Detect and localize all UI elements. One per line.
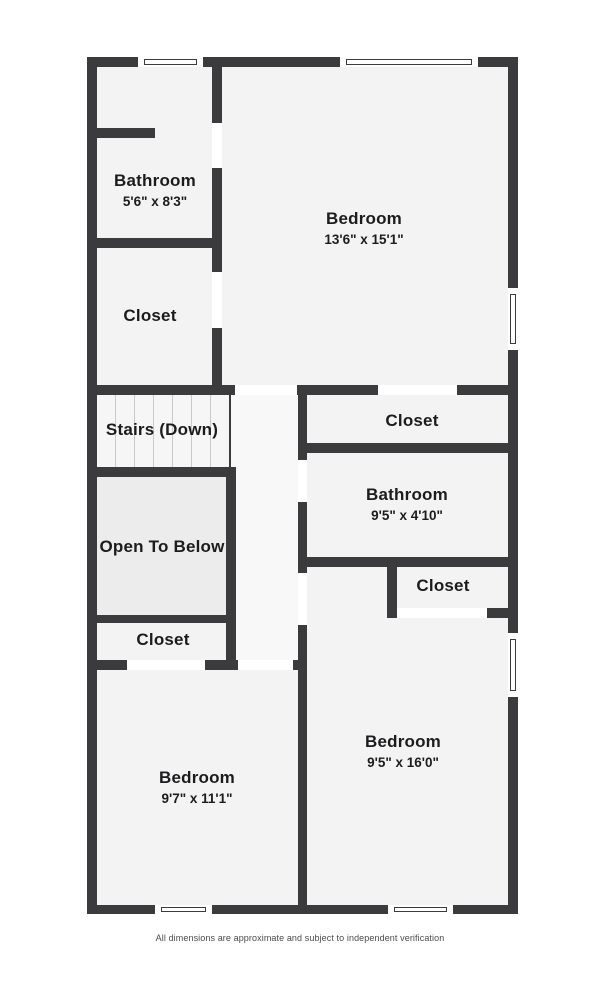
label-bathroom-mid: Bathroom 9'5" x 4'10" <box>366 485 448 523</box>
window-bedroom-upper-top <box>340 57 478 67</box>
room-name: Closet <box>385 411 438 431</box>
label-bedroom-upper: Bedroom 13'6" x 15'1" <box>324 209 403 247</box>
label-open-to-below: Open To Below <box>99 537 224 557</box>
window-bedroom-lower-right-side <box>508 633 518 697</box>
window-bathroom-upper <box>138 57 203 67</box>
window-pane <box>394 907 447 912</box>
label-closet-mid-left: Closet <box>136 630 189 650</box>
hallway-main <box>236 467 298 660</box>
door-bathroom-mid <box>298 460 307 502</box>
room-name: Bedroom <box>324 209 403 229</box>
window-pane <box>144 59 197 65</box>
window-pane <box>346 59 472 65</box>
window-bedroom-upper-right <box>508 288 518 350</box>
room-name: Open To Below <box>99 537 224 557</box>
disclaimer-text: All dimensions are approximate and subje… <box>156 933 445 943</box>
room-dims: 9'5" x 4'10" <box>366 508 448 524</box>
door-bedroom-lower-left <box>238 660 293 670</box>
window-bedroom-lower-right-bottom <box>388 905 453 914</box>
label-bedroom-lower-right: Bedroom 9'5" x 16'0" <box>365 732 441 770</box>
room-bathroom-upper <box>97 67 212 238</box>
room-dims: 9'7" x 11'1" <box>159 791 235 807</box>
label-stairs: Stairs (Down) <box>106 420 218 440</box>
label-bathroom-upper: Bathroom 5'6" x 8'3" <box>114 171 196 209</box>
hallway-upper <box>231 395 298 467</box>
wall-bathroom-stub <box>97 128 155 138</box>
label-bedroom-lower-left: Bedroom 9'7" x 11'1" <box>159 768 235 806</box>
floor-plan: Bathroom 5'6" x 8'3" Closet Bedroom 13'6… <box>0 0 600 988</box>
room-name: Bedroom <box>159 768 235 788</box>
room-dims: 13'6" x 15'1" <box>324 232 403 248</box>
room-dims: 9'5" x 16'0" <box>365 755 441 771</box>
window-pane <box>510 294 516 344</box>
door-bedroom-lower-right <box>298 573 307 625</box>
room-name: Closet <box>416 576 469 596</box>
door-bathroom-upper <box>212 123 222 168</box>
door-closet-upper-left <box>212 272 222 328</box>
label-closet-upper-left: Closet <box>123 306 176 326</box>
door-closet-lower-right <box>397 608 487 618</box>
room-name: Bathroom <box>366 485 448 505</box>
door-closet-mid-right <box>378 385 457 395</box>
label-closet-mid-right: Closet <box>385 411 438 431</box>
room-name: Bathroom <box>114 171 196 191</box>
room-dims: 5'6" x 8'3" <box>114 194 196 210</box>
label-closet-lower-right: Closet <box>416 576 469 596</box>
door-bedroom-upper <box>235 385 297 395</box>
room-name: Closet <box>123 306 176 326</box>
door-closet-mid-left <box>127 660 205 670</box>
room-name: Bedroom <box>365 732 441 752</box>
window-pane <box>161 907 206 912</box>
room-name: Stairs (Down) <box>106 420 218 440</box>
room-name: Closet <box>136 630 189 650</box>
window-bedroom-lower-left <box>155 905 212 914</box>
window-pane <box>510 639 516 691</box>
